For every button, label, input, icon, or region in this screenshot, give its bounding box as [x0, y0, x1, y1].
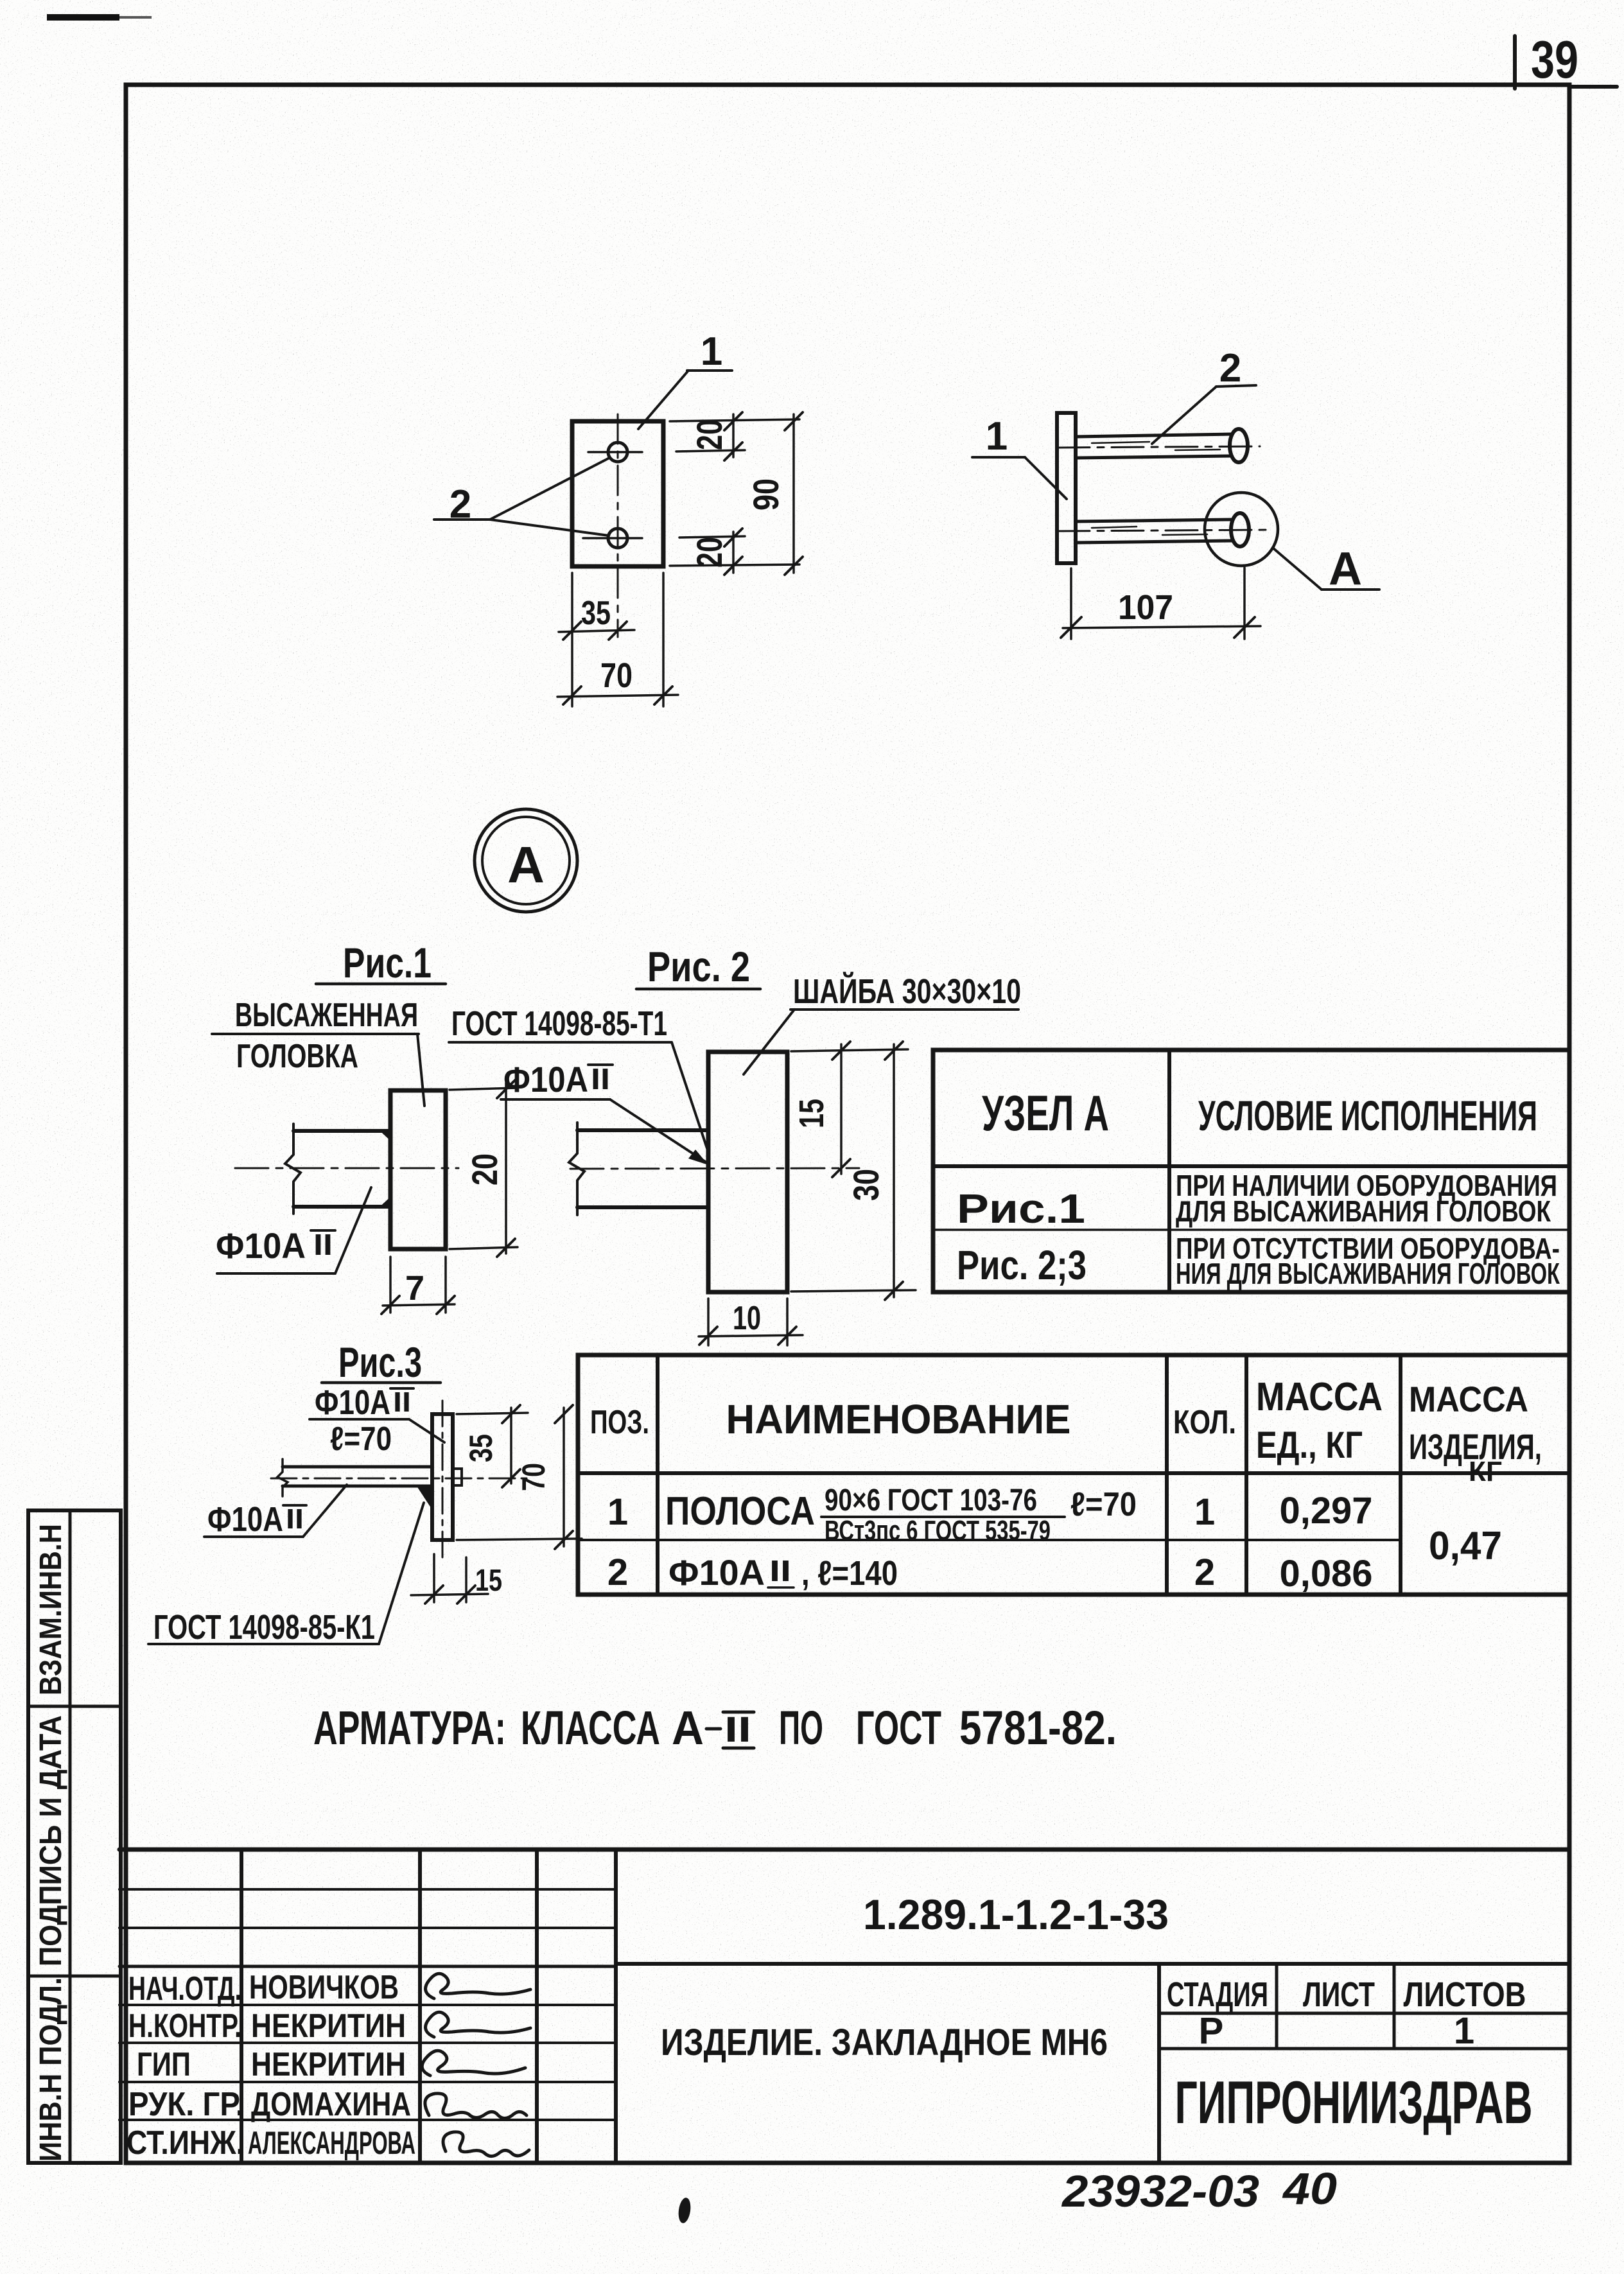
svg-text:КОЛ.: КОЛ. — [1173, 1404, 1236, 1441]
svg-text:НЕКРИТИН: НЕКРИТИН — [251, 2007, 406, 2045]
svg-text:Ф10А: Ф10А — [207, 1500, 283, 1539]
svg-text:Рис.1: Рис.1 — [957, 1185, 1085, 1232]
svg-text:КГ: КГ — [1469, 1456, 1502, 1487]
svg-text:ПОЛОСА: ПОЛОСА — [665, 1489, 815, 1534]
svg-text:ВСт3пс 6 ГОСТ 535-79: ВСт3пс 6 ГОСТ 535-79 — [825, 1515, 1051, 1546]
svg-text:ГОСТ 14098-85-К1: ГОСТ 14098-85-К1 — [153, 1608, 375, 1647]
svg-text:УСЛОВИЕ ИСПОЛНЕНИЯ: УСЛОВИЕ ИСПОЛНЕНИЯ — [1198, 1092, 1537, 1139]
svg-text:РУК. ГР.: РУК. ГР. — [128, 2086, 244, 2123]
svg-text:1: 1 — [1194, 1491, 1215, 1533]
svg-text:АРМАТУРА:: АРМАТУРА: — [313, 1701, 506, 1754]
svg-text:АЛЕКСАНДРОВА: АЛЕКСАНДРОВА — [248, 2125, 415, 2161]
svg-text:23932-03: 23932-03 — [1061, 2166, 1259, 2216]
svg-text:Ф10А: Ф10А — [315, 1383, 390, 1422]
svg-text:2: 2 — [607, 1552, 628, 1593]
svg-text:1: 1 — [607, 1491, 628, 1533]
svg-text:Н.КОНТР.: Н.КОНТР. — [128, 2007, 241, 2045]
svg-text:СТ.ИНЖ.: СТ.ИНЖ. — [127, 2124, 244, 2162]
svg-text:НЕКРИТИН: НЕКРИТИН — [251, 2046, 406, 2083]
svg-text:ГОСТ 14098-85-Т1: ГОСТ 14098-85-Т1 — [451, 1004, 667, 1043]
svg-text:70: 70 — [600, 656, 633, 695]
svg-text:НИЯ ДЛЯ ВЫСАЖИВАНИЯ ГОЛОВОК: НИЯ ДЛЯ ВЫСАЖИВАНИЯ ГОЛОВОК — [1176, 1257, 1560, 1290]
svg-text:КЛАССА: КЛАССА — [521, 1701, 660, 1754]
svg-text:ИЗДЕЛИЕ. ЗАКЛАДНОЕ МН6: ИЗДЕЛИЕ. ЗАКЛАДНОЕ МН6 — [661, 2022, 1108, 2063]
svg-text:30: 30 — [846, 1169, 886, 1201]
svg-text:ГИП: ГИП — [137, 2046, 191, 2083]
svg-text:II: II — [591, 1062, 610, 1096]
svg-text:0,47: 0,47 — [1429, 1524, 1502, 1568]
svg-text:40: 40 — [1282, 2164, 1337, 2214]
svg-text:ГОЛОВКА: ГОЛОВКА — [236, 1038, 358, 1075]
svg-text:II: II — [286, 1503, 304, 1535]
svg-text:ГИПРОНИИЗДРАВ: ГИПРОНИИЗДРАВ — [1175, 2068, 1533, 2136]
svg-text:МАССА: МАССА — [1409, 1379, 1528, 1419]
svg-text:1.289.1-1.2-1-33: 1.289.1-1.2-1-33 — [863, 1891, 1169, 1938]
svg-text:ШАЙБА 30×30×10: ШАЙБА 30×30×10 — [793, 972, 1021, 1011]
svg-text:ИНВ.Н ПОДЛ.: ИНВ.Н ПОДЛ. — [34, 1977, 68, 2162]
svg-text:Рис. 2: Рис. 2 — [647, 943, 750, 990]
svg-text:7: 7 — [405, 1269, 424, 1308]
svg-text:ВЗАМ.ИНВ.Н: ВЗАМ.ИНВ.Н — [34, 1524, 68, 1695]
svg-text:35: 35 — [463, 1434, 499, 1462]
svg-text:ВЫСАЖЕННАЯ: ВЫСАЖЕННАЯ — [235, 997, 418, 1034]
svg-text:ЕД., КГ: ЕД., КГ — [1256, 1424, 1363, 1466]
svg-text:1: 1 — [701, 329, 722, 374]
svg-text:0,086: 0,086 — [1280, 1553, 1373, 1595]
svg-text:2: 2 — [1194, 1552, 1215, 1593]
svg-text:ПО: ПО — [779, 1701, 823, 1754]
svg-text:90: 90 — [746, 478, 786, 511]
svg-text:0,297: 0,297 — [1280, 1490, 1373, 1532]
svg-text:15: 15 — [475, 1564, 502, 1598]
svg-text:1: 1 — [986, 414, 1008, 459]
svg-text:39: 39 — [1531, 30, 1578, 89]
svg-text:ПОЗ.: ПОЗ. — [590, 1404, 649, 1441]
svg-text:МАССА: МАССА — [1256, 1375, 1383, 1419]
svg-text:10: 10 — [733, 1300, 761, 1337]
svg-text:Рис. 2;3: Рис. 2;3 — [957, 1242, 1087, 1288]
svg-text:А: А — [507, 836, 545, 893]
svg-text:ЛИСТ: ЛИСТ — [1303, 1975, 1375, 2014]
svg-text:Рис.3: Рис.3 — [338, 1338, 422, 1386]
svg-text:ℓ=70: ℓ=70 — [330, 1421, 392, 1458]
svg-text:II: II — [769, 1554, 791, 1587]
svg-text:1: 1 — [1454, 2010, 1474, 2052]
svg-text:Р: Р — [1199, 2010, 1224, 2052]
svg-text:НОВИЧКОВ: НОВИЧКОВ — [249, 1969, 399, 2006]
svg-text:II: II — [393, 1386, 411, 1418]
svg-text:А: А — [672, 1701, 704, 1754]
svg-text:А: А — [1329, 543, 1362, 595]
svg-text:НАИМЕНОВАНИЕ: НАИМЕНОВАНИЕ — [726, 1396, 1071, 1442]
svg-text:СТАДИЯ: СТАДИЯ — [1167, 1975, 1268, 2014]
svg-text:НАЧ.ОТД.: НАЧ.ОТД. — [128, 1970, 241, 2007]
svg-text:УЗЕЛ А: УЗЕЛ А — [982, 1085, 1109, 1141]
svg-text:20: 20 — [689, 537, 729, 568]
svg-text:5781-82.: 5781-82. — [959, 1701, 1117, 1754]
svg-text:ℓ=70: ℓ=70 — [1070, 1486, 1137, 1523]
svg-text:107: 107 — [1118, 588, 1173, 627]
svg-text:ГОСТ: ГОСТ — [856, 1701, 941, 1754]
svg-text:, ℓ=140: , ℓ=140 — [801, 1554, 898, 1593]
svg-text:ЛИСТОВ: ЛИСТОВ — [1404, 1975, 1526, 2014]
svg-text:II: II — [313, 1228, 333, 1261]
svg-text:Ф10А: Ф10А — [503, 1059, 588, 1099]
svg-text:II: II — [724, 1709, 751, 1749]
svg-text:15: 15 — [792, 1099, 831, 1128]
svg-text:20: 20 — [464, 1153, 505, 1185]
svg-text:ПОДПИСЬ И ДАТА: ПОДПИСЬ И ДАТА — [34, 1715, 68, 1966]
svg-text:Рис.1: Рис.1 — [343, 939, 432, 986]
svg-text:Ф10А: Ф10А — [216, 1225, 306, 1266]
svg-text:70: 70 — [516, 1463, 552, 1491]
svg-text:Ф10А: Ф10А — [668, 1552, 765, 1593]
svg-text:2: 2 — [1219, 346, 1241, 390]
svg-text:ДЛЯ ВЫСАЖИВАНИЯ ГОЛОВОК: ДЛЯ ВЫСАЖИВАНИЯ ГОЛОВОК — [1176, 1194, 1551, 1228]
svg-text:ДОМАХИНА: ДОМАХИНА — [251, 2086, 411, 2123]
svg-text:20: 20 — [689, 419, 729, 450]
svg-text:35: 35 — [581, 595, 611, 632]
svg-text:90×6 ГОСТ 103-76: 90×6 ГОСТ 103-76 — [825, 1483, 1037, 1517]
